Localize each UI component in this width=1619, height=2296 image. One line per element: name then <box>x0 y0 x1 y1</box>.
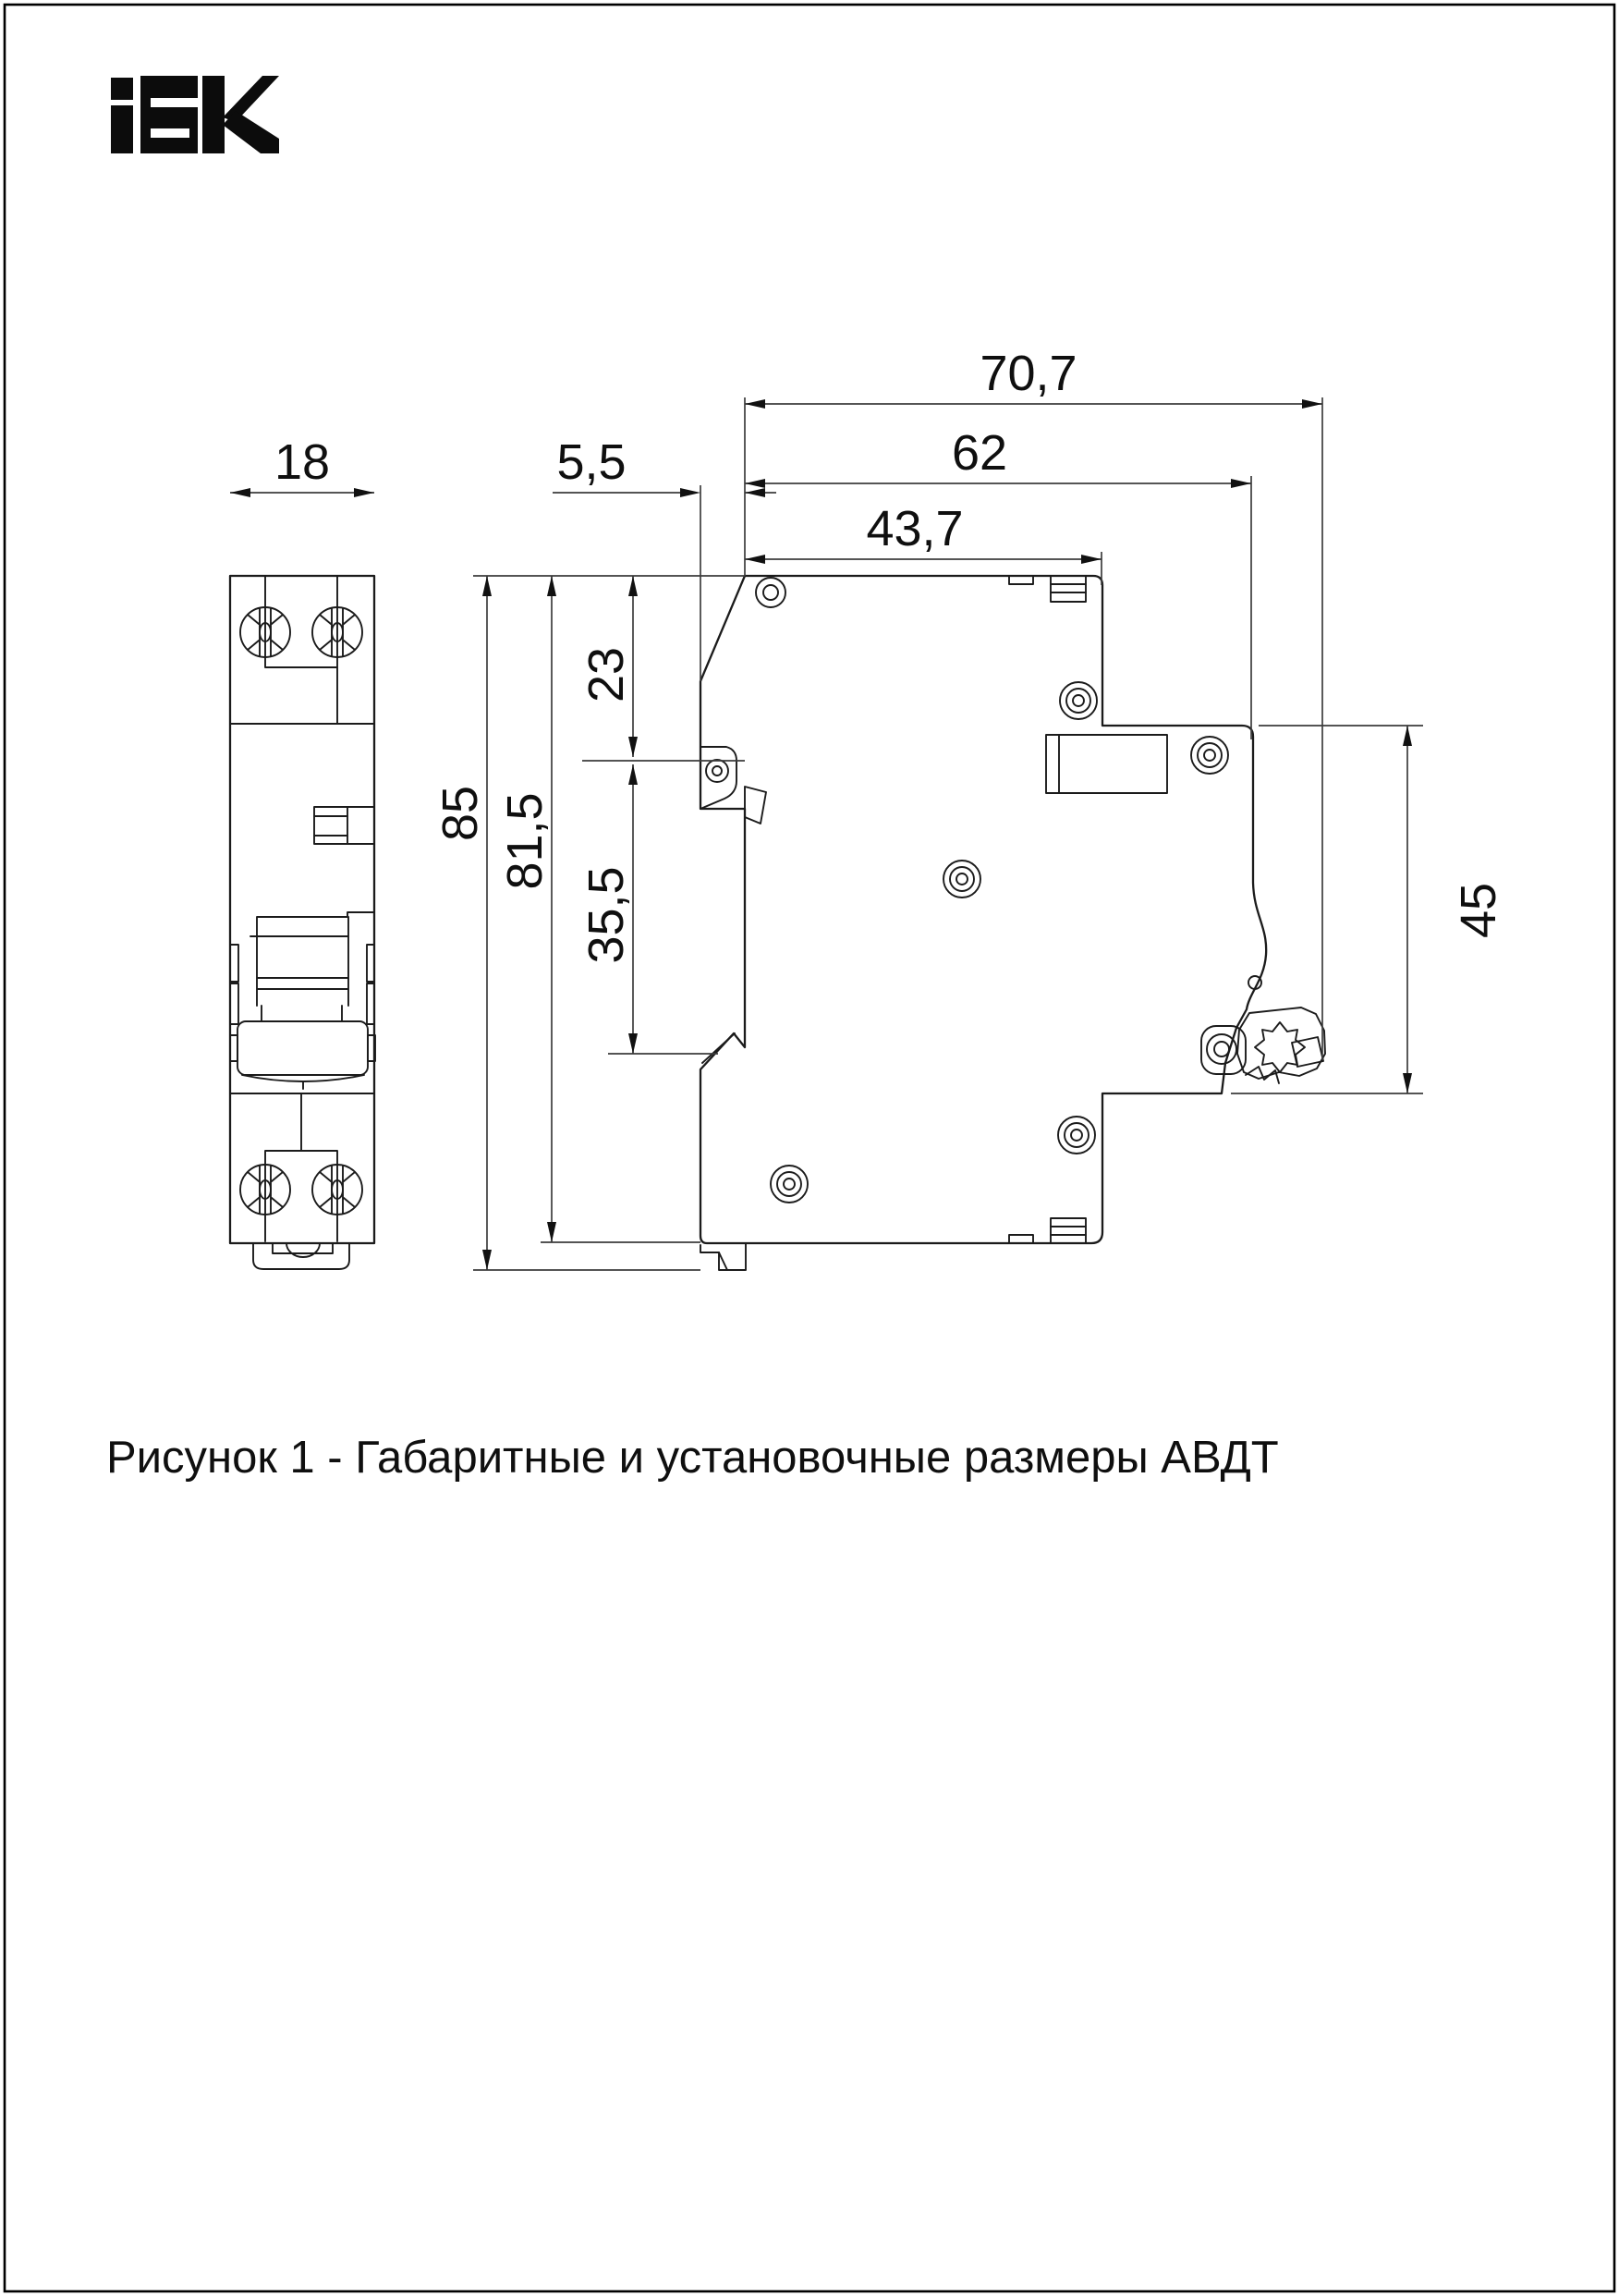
dim-height-body: 81,5 <box>497 576 556 1242</box>
dim-label-70-7: 70,7 <box>980 346 1077 401</box>
rivet-icon <box>756 578 785 607</box>
dim-module-width: 18 <box>230 434 374 497</box>
front-lower-divider <box>230 1093 374 1151</box>
bottom-clip-slots <box>1009 1218 1086 1243</box>
rivet-icon <box>771 1166 808 1203</box>
drawing-page: 70,7 62 43,7 5,5 18 <box>0 0 1619 2296</box>
toggle-knob <box>237 1021 368 1075</box>
top-clip-slots <box>1009 576 1086 602</box>
logo-e <box>140 76 198 153</box>
dimensions: 70,7 62 43,7 5,5 18 <box>230 346 1506 1270</box>
front-din-foot <box>253 1243 349 1269</box>
dim-depth-to-din: 62 <box>745 425 1251 488</box>
logo-i-dot <box>111 78 133 100</box>
front-wedge-lower <box>702 1033 735 1063</box>
dim-label-45: 45 <box>1451 883 1506 938</box>
side-view-outline <box>700 576 1266 1243</box>
front-terminal-box-top <box>265 576 337 724</box>
test-button <box>314 807 374 844</box>
dim-top-offset: 23 <box>578 576 638 757</box>
dim-depth-overall: 70,7 <box>745 346 1322 409</box>
dim-label-43-7: 43,7 <box>866 501 963 556</box>
front-lug <box>700 747 736 809</box>
dim-front-lip: 5,5 <box>553 434 776 497</box>
din-hook-block <box>1046 735 1167 793</box>
dim-label-5-5: 5,5 <box>556 434 626 490</box>
dim-front-zone-height: 35,5 <box>578 764 638 1054</box>
rivet-icon <box>1191 737 1228 774</box>
toggle-mechanism <box>230 912 375 1089</box>
figure-caption: Рисунок 1 - Габаритные и установочные ра… <box>106 1433 1279 1483</box>
dim-label-35-5: 35,5 <box>578 866 634 963</box>
dim-depth-front-block: 43,7 <box>745 501 1102 564</box>
front-wedge-upper <box>745 787 766 824</box>
rivet-icon <box>1060 682 1097 719</box>
dim-label-85: 85 <box>432 786 488 841</box>
din-latch <box>1201 976 1325 1083</box>
dim-label-81-5: 81,5 <box>497 792 553 889</box>
logo-i-stem <box>111 105 133 153</box>
dim-height-overall: 85 <box>432 576 492 1270</box>
front-terminal-box-bottom <box>265 1151 337 1241</box>
side-din-foot <box>700 1243 746 1270</box>
dim-label-18: 18 <box>274 434 330 490</box>
logo-k <box>202 76 279 153</box>
dimension-drawing: 70,7 62 43,7 5,5 18 <box>0 0 1619 2296</box>
rivet-icon <box>1058 1117 1095 1154</box>
rivet-icon <box>943 861 980 898</box>
dim-label-23: 23 <box>578 647 634 702</box>
side-view <box>700 576 1325 1270</box>
dim-din-section-height: 45 <box>1403 726 1506 1093</box>
page-border <box>5 5 1614 2291</box>
dim-label-62: 62 <box>952 425 1007 481</box>
front-view-body <box>230 576 374 1243</box>
front-view <box>230 576 375 1269</box>
iek-logo <box>111 76 279 153</box>
